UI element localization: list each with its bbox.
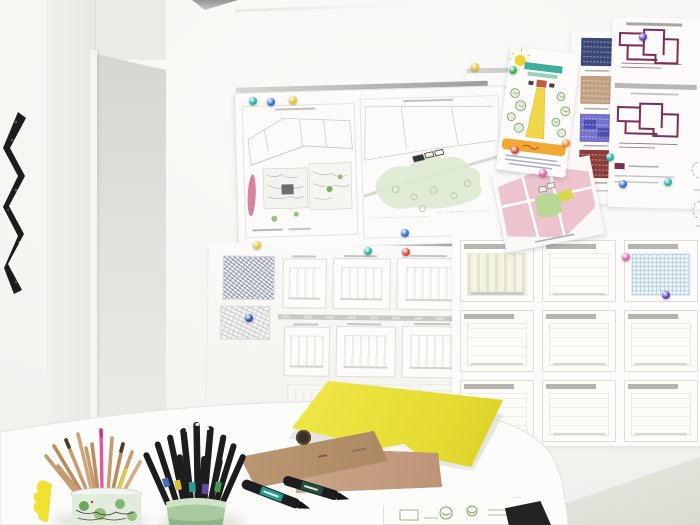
marker-cup-group [142, 410, 248, 525]
pencil-cup-group [28, 418, 148, 525]
studio-scene [0, 0, 700, 525]
notebook-stamp [296, 430, 311, 445]
